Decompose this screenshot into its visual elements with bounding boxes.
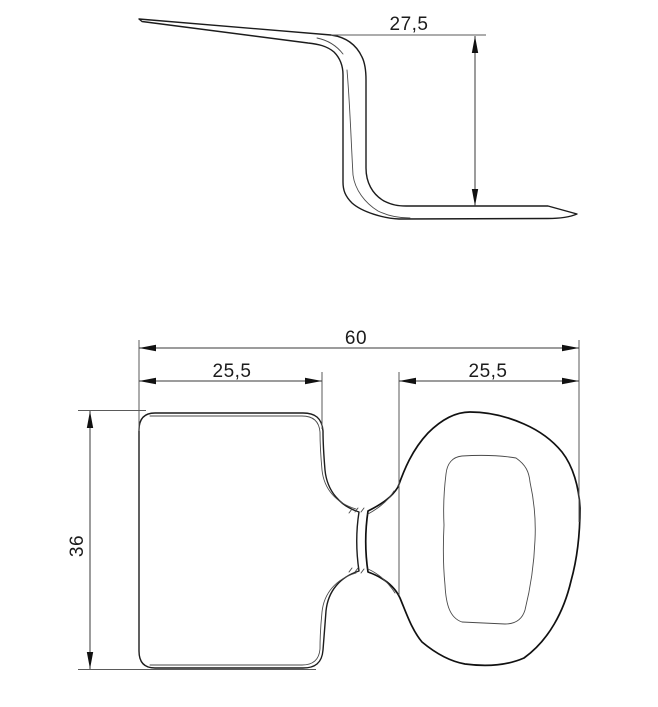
arrowhead-up <box>472 36 478 53</box>
plan-dimension-paddle-width: 25,5 <box>139 361 322 429</box>
arrowhead-left <box>139 378 156 384</box>
ring-inner-hole <box>443 455 535 624</box>
ring-outer-outline <box>366 412 580 665</box>
dimension-label-height: 27,5 <box>390 14 429 35</box>
arrowhead-down <box>87 652 93 669</box>
tick-mark <box>361 569 364 573</box>
paddle-outline <box>139 413 359 668</box>
arrowhead-right <box>562 345 579 351</box>
drawing-svg: 27,5 <box>0 0 658 707</box>
arrowhead-left <box>139 345 156 351</box>
dimension-label-total-width: 60 <box>345 328 367 349</box>
dimension-label-ring-width: 25,5 <box>469 361 508 382</box>
ring-junction-edge-upper <box>368 491 394 514</box>
side-bend-edge-web <box>347 70 410 218</box>
tick-mark <box>349 568 352 572</box>
side-view: 27,5 <box>139 14 577 219</box>
arrowhead-down <box>472 189 478 206</box>
tick-mark <box>361 508 364 512</box>
arrowhead-up <box>87 411 93 428</box>
side-profile-outline <box>139 19 577 219</box>
plan-dimension-total-width: 60 <box>139 328 579 522</box>
arrowhead-right <box>562 378 579 384</box>
arrowhead-left <box>399 378 416 384</box>
plan-dimension-paddle-height: 36 <box>67 411 316 670</box>
ring-junction-edge-lower <box>368 569 395 593</box>
arrowhead-right <box>305 378 322 384</box>
plan-view: 60 25,5 25,5 <box>67 328 580 670</box>
dimension-label-paddle-height: 36 <box>67 535 88 557</box>
tick-mark <box>349 509 352 513</box>
technical-drawing-canvas: 27,5 <box>0 0 658 707</box>
plan-dimension-ring-width: 25,5 <box>399 361 579 595</box>
side-dimension-height: 27,5 <box>331 14 486 206</box>
dimension-label-paddle-width: 25,5 <box>213 361 252 382</box>
